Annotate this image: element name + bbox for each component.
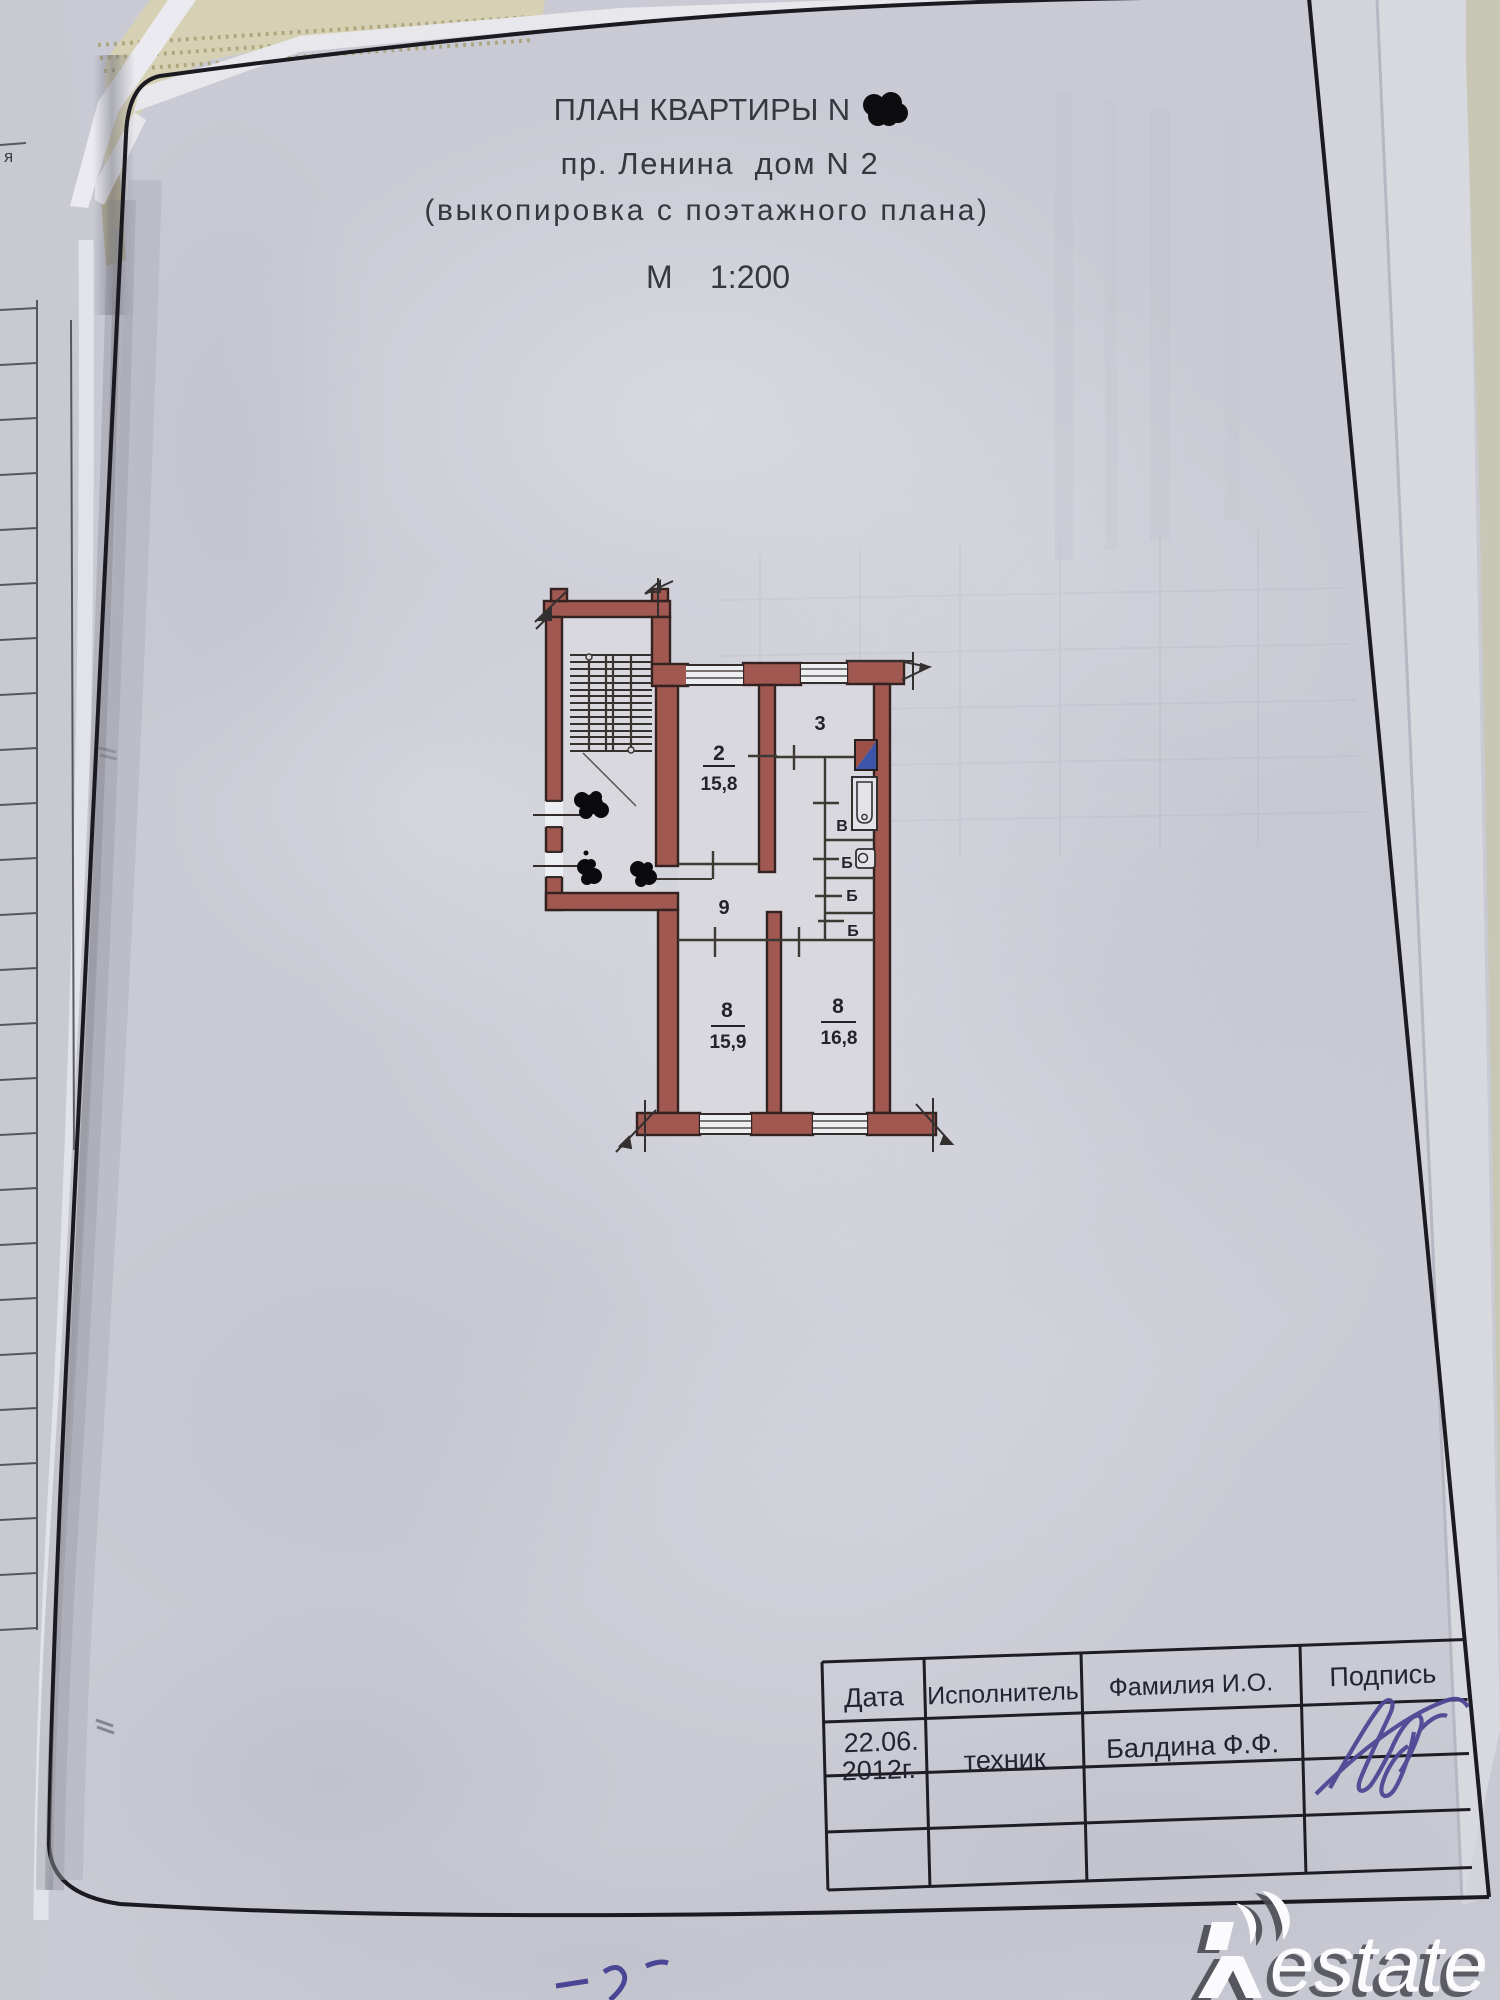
svg-text:16,8: 16,8 <box>821 1028 858 1049</box>
svg-text:8: 8 <box>721 999 733 1022</box>
svg-text:я: я <box>4 147 13 166</box>
svg-text:Фамилия И.О.: Фамилия И.О. <box>1108 1668 1273 1702</box>
svg-text:3: 3 <box>814 713 825 735</box>
svg-text:М: М <box>646 259 673 295</box>
svg-text:ПЛАН КВАРТИРЫ N: ПЛАН КВАРТИРЫ N <box>554 92 851 127</box>
svg-text:15,8: 15,8 <box>701 774 738 795</box>
svg-text:9: 9 <box>718 897 729 919</box>
svg-text:Балдина Ф.Ф.: Балдина Ф.Ф. <box>1106 1728 1280 1764</box>
svg-text:В: В <box>836 818 848 835</box>
svg-text:Подпись: Подпись <box>1329 1659 1437 1693</box>
svg-text:15,9: 15,9 <box>710 1032 747 1053</box>
svg-text:Исполнитель: Исполнитель <box>927 1677 1079 1710</box>
svg-text:estate: estate <box>1270 1919 1488 2000</box>
svg-text:8: 8 <box>832 995 844 1018</box>
svg-text:Б: Б <box>841 855 853 872</box>
svg-text:(выкопировка с поэтажного план: (выкопировка с поэтажного плана) <box>424 194 989 227</box>
svg-text:Б: Б <box>846 888 858 905</box>
svg-text:2012г.: 2012г. <box>841 1754 916 1787</box>
svg-text:Дата: Дата <box>844 1681 906 1713</box>
svg-text:2: 2 <box>713 742 725 765</box>
svg-text:техник: техник <box>963 1743 1046 1776</box>
svg-text:Б: Б <box>847 923 859 940</box>
svg-text:1:200: 1:200 <box>710 259 790 295</box>
svg-text:пр. Ленина дом N 2: пр. Ленина дом N 2 <box>561 146 880 181</box>
